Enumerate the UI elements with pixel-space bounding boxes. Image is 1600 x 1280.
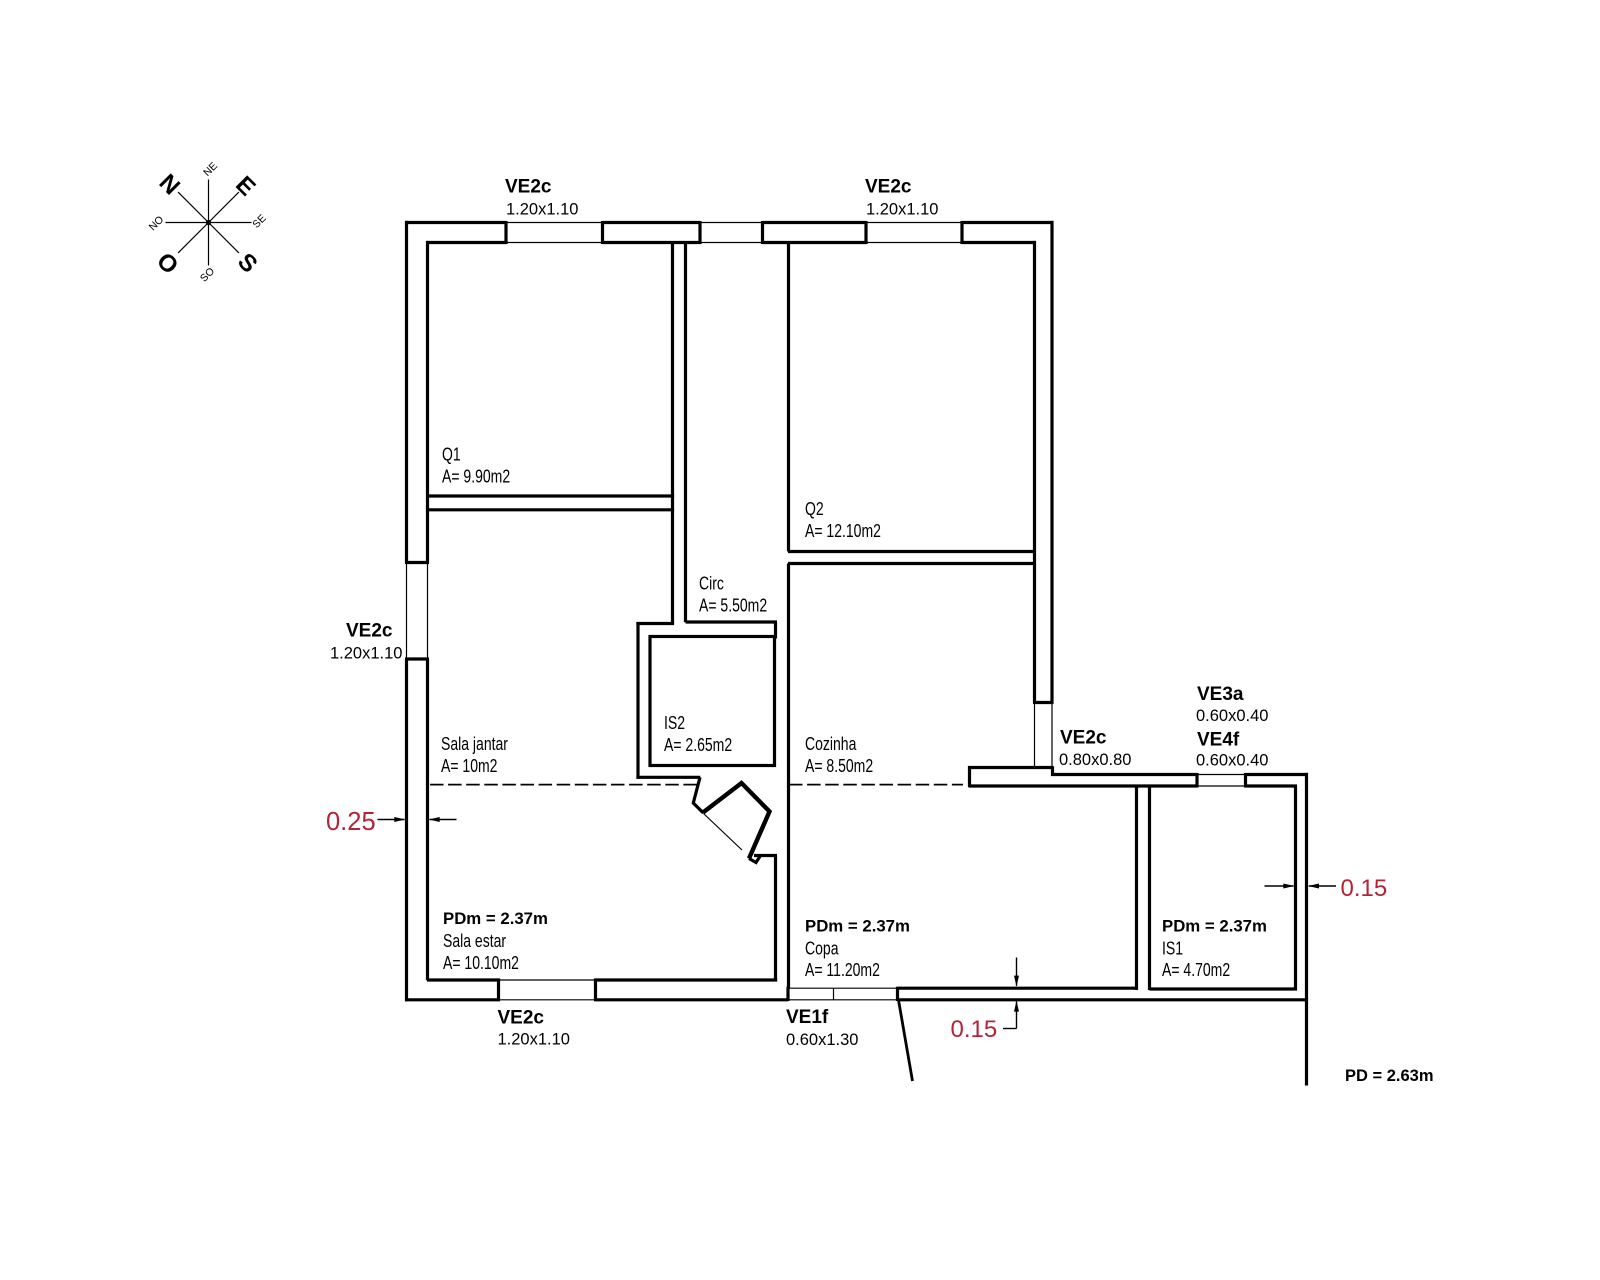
svg-text:A= 9.90m2: A= 9.90m2 bbox=[442, 467, 510, 487]
svg-text:IS1: IS1 bbox=[1162, 939, 1183, 959]
svg-text:Sala jantar: Sala jantar bbox=[441, 734, 508, 754]
svg-text:0.60x1.30: 0.60x1.30 bbox=[786, 1031, 858, 1049]
svg-text:1.20x1.10: 1.20x1.10 bbox=[498, 1031, 570, 1049]
svg-text:0.25: 0.25 bbox=[326, 808, 376, 836]
svg-text:Q2: Q2 bbox=[805, 499, 824, 519]
svg-text:VE2c: VE2c bbox=[346, 620, 393, 641]
svg-text:VE3a: VE3a bbox=[1197, 684, 1244, 705]
svg-text:0.60x0.40: 0.60x0.40 bbox=[1196, 707, 1268, 725]
svg-text:Cozinha: Cozinha bbox=[805, 734, 857, 754]
svg-text:PD = 2.63m: PD = 2.63m bbox=[1345, 1067, 1434, 1085]
svg-text:0.15: 0.15 bbox=[1341, 875, 1388, 902]
svg-text:0.60x0.40: 0.60x0.40 bbox=[1196, 752, 1268, 770]
svg-text:1.20x1.10: 1.20x1.10 bbox=[330, 645, 402, 663]
svg-text:1.20x1.10: 1.20x1.10 bbox=[506, 201, 578, 219]
svg-text:A= 2.65m2: A= 2.65m2 bbox=[664, 735, 732, 755]
svg-text:Sala estar: Sala estar bbox=[443, 931, 507, 951]
svg-text:0.80x0.80: 0.80x0.80 bbox=[1059, 751, 1131, 769]
svg-text:VE1f: VE1f bbox=[786, 1007, 829, 1028]
svg-text:VE2c: VE2c bbox=[498, 1008, 545, 1029]
svg-text:0.15: 0.15 bbox=[951, 1016, 998, 1043]
svg-text:Copa: Copa bbox=[805, 939, 839, 959]
svg-text:1.20x1.10: 1.20x1.10 bbox=[866, 201, 938, 219]
svg-text:IS2: IS2 bbox=[664, 713, 685, 733]
svg-text:A= 5.50m2: A= 5.50m2 bbox=[699, 596, 767, 616]
svg-text:Circ: Circ bbox=[699, 574, 724, 594]
svg-text:VE4f: VE4f bbox=[1197, 729, 1240, 750]
svg-text:A= 4.70m2: A= 4.70m2 bbox=[1162, 960, 1230, 980]
svg-text:PDm = 2.37m: PDm = 2.37m bbox=[443, 909, 548, 928]
svg-text:VE2c: VE2c bbox=[865, 176, 912, 197]
svg-text:A= 11.20m2: A= 11.20m2 bbox=[805, 960, 880, 980]
svg-text:A= 10.10m2: A= 10.10m2 bbox=[443, 953, 519, 973]
svg-text:VE2c: VE2c bbox=[1060, 727, 1107, 748]
svg-text:A= 10m2: A= 10m2 bbox=[441, 756, 497, 776]
svg-text:A= 8.50m2: A= 8.50m2 bbox=[805, 756, 873, 776]
svg-text:Q1: Q1 bbox=[442, 445, 461, 465]
svg-text:VE2c: VE2c bbox=[505, 176, 552, 197]
svg-text:PDm = 2.37m: PDm = 2.37m bbox=[805, 917, 910, 936]
svg-text:A= 12.10m2: A= 12.10m2 bbox=[805, 521, 881, 541]
svg-text:PDm = 2.37m: PDm = 2.37m bbox=[1162, 917, 1267, 936]
